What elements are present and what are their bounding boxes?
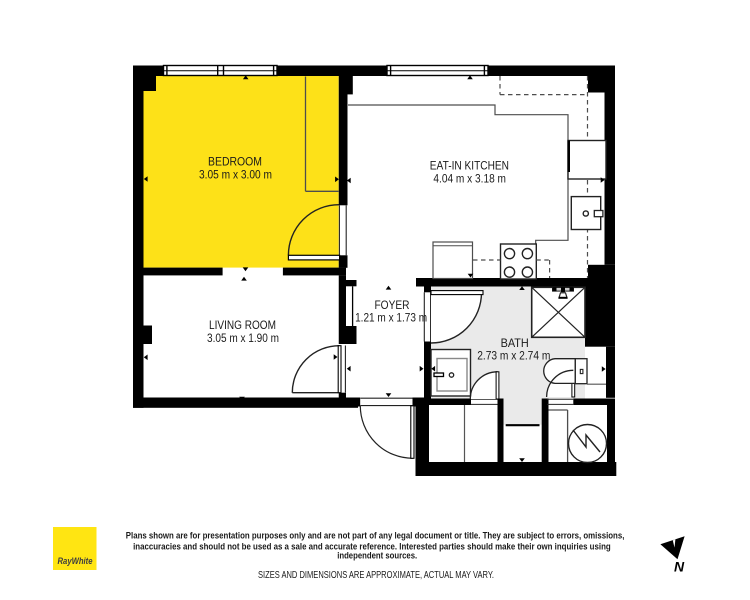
svg-text:LIVING ROOM: LIVING ROOM bbox=[209, 319, 276, 332]
svg-text:1.21 m x 1.73 m: 1.21 m x 1.73 m bbox=[355, 312, 427, 325]
svg-text:3.05 m x 1.90 m: 3.05 m x 1.90 m bbox=[207, 332, 279, 345]
svg-text:EAT-IN KITCHEN: EAT-IN KITCHEN bbox=[430, 159, 509, 172]
svg-text:RayWhite: RayWhite bbox=[58, 556, 93, 566]
svg-text:4.04 m x 3.18 m: 4.04 m x 3.18 m bbox=[433, 173, 506, 186]
svg-text:BEDROOM: BEDROOM bbox=[208, 156, 262, 169]
svg-text:2.73 m x 2.74 m: 2.73 m x 2.74 m bbox=[477, 349, 550, 362]
svg-text:Plans shown are for presentati: Plans shown are for presentation purpose… bbox=[126, 530, 625, 540]
svg-text:SIZES AND DIMENSIONS ARE APPRO: SIZES AND DIMENSIONS ARE APPROXIMATE, AC… bbox=[258, 570, 494, 581]
svg-text:BATH: BATH bbox=[501, 337, 529, 350]
svg-text:FOYER: FOYER bbox=[374, 299, 409, 312]
svg-text:independent sources.: independent sources. bbox=[337, 550, 417, 560]
svg-text:3.05 m x 3.00 m: 3.05 m x 3.00 m bbox=[199, 169, 272, 182]
svg-text:N: N bbox=[674, 559, 685, 575]
